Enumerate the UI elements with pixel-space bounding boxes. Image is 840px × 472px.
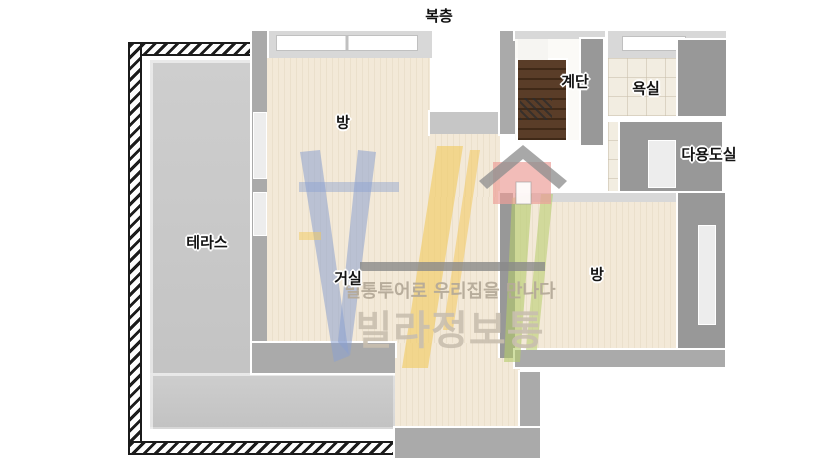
stair-railing-hatch bbox=[520, 98, 552, 120]
wall bbox=[515, 31, 605, 39]
window-icon bbox=[253, 192, 267, 236]
terrace-border-hatch-top bbox=[128, 42, 258, 56]
wall bbox=[581, 39, 603, 145]
vent-icon bbox=[622, 36, 686, 51]
plan-title: 복층 bbox=[397, 5, 481, 26]
terrace-border-hatch-left bbox=[128, 42, 142, 455]
wall bbox=[678, 40, 726, 116]
terrace-border-hatch-bottom bbox=[128, 441, 398, 455]
wall bbox=[500, 31, 515, 134]
floorplan-canvas: 복층 bbox=[0, 0, 840, 472]
stair-landing bbox=[518, 39, 548, 60]
terrace-floor-lower bbox=[150, 373, 395, 429]
room-label-living: 거실 bbox=[334, 268, 362, 289]
window-icon bbox=[253, 112, 267, 179]
watermark-brand: 빌라정보통 bbox=[333, 298, 567, 356]
room-label-utility: 다용도실 bbox=[681, 144, 736, 165]
room-label-stairs: 계단 bbox=[561, 71, 589, 92]
window-icon bbox=[276, 35, 418, 51]
door-icon bbox=[698, 225, 716, 325]
hallway-floor bbox=[430, 134, 500, 197]
room-label-room-top: 방 bbox=[336, 112, 350, 133]
room-label-terrace: 테라스 bbox=[186, 232, 227, 253]
door-icon bbox=[648, 140, 676, 188]
utility-floor bbox=[608, 122, 620, 198]
wall bbox=[395, 428, 540, 458]
room-label-bathroom: 욕실 bbox=[632, 78, 660, 99]
extension-floor bbox=[395, 358, 520, 428]
room-label-room-right: 방 bbox=[590, 264, 604, 285]
